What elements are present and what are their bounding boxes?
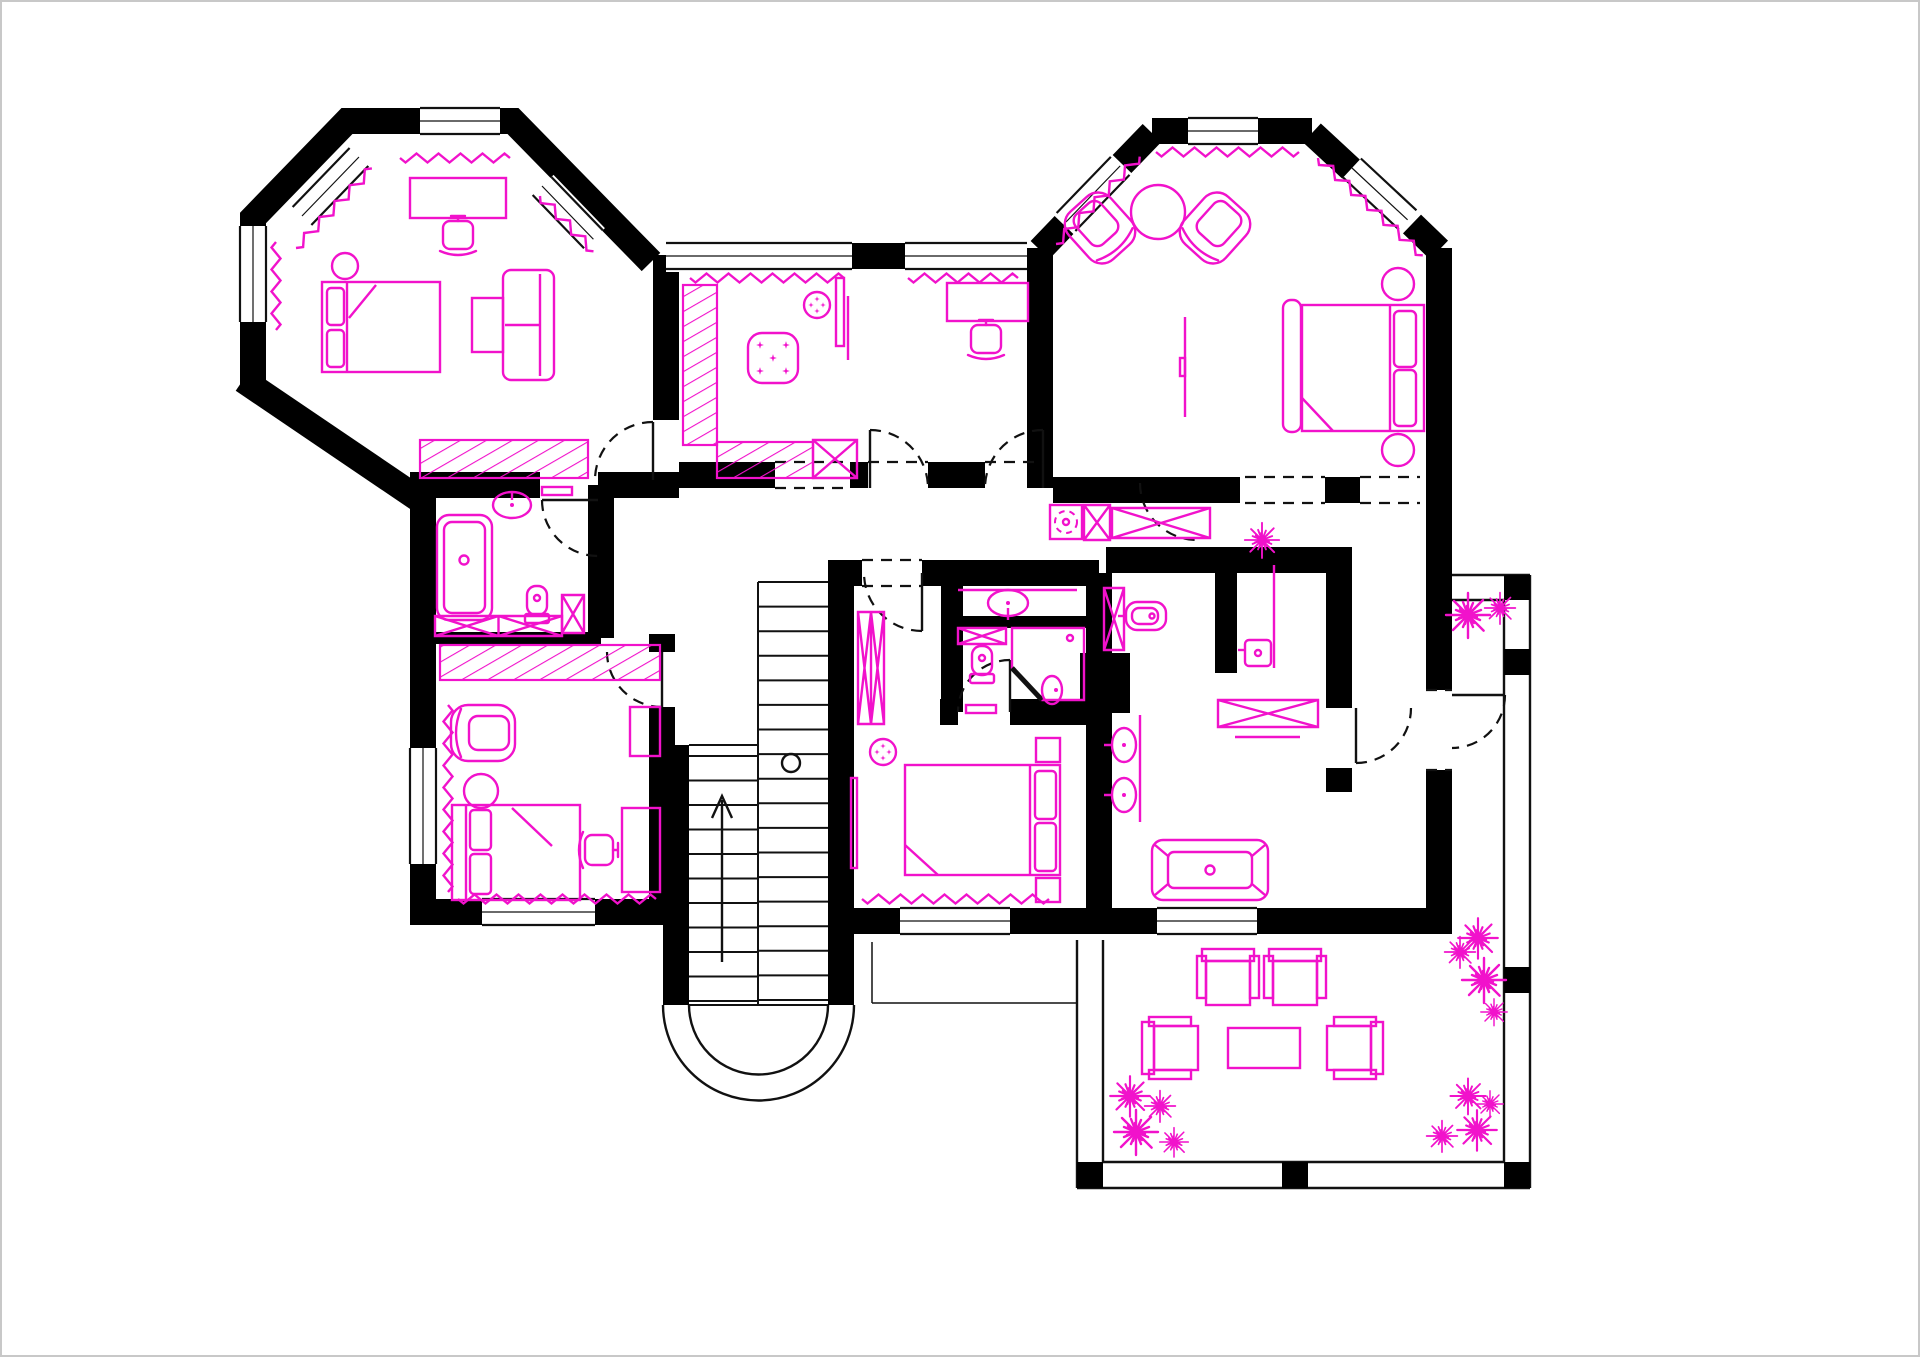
round-side-table	[464, 774, 498, 808]
stair-newel-circle	[782, 754, 800, 772]
desk-chair	[440, 216, 476, 255]
bench-cabinet	[1218, 700, 1318, 727]
wide-low-cabinet	[1112, 508, 1210, 538]
shower-stall	[1238, 565, 1274, 668]
toilet	[525, 586, 549, 623]
outdoor-armchair	[1197, 949, 1259, 1005]
floor-plan-drawing: architectural floor plan	[0, 0, 1920, 1357]
shelf	[542, 487, 572, 495]
ottoman	[748, 333, 798, 383]
vanity-washbasin	[988, 590, 1028, 620]
staircase: U-shaped staircase	[663, 582, 854, 1101]
desk	[410, 178, 506, 218]
wardrobe-left	[683, 285, 717, 445]
stair-treads-left	[689, 756, 758, 1001]
wardrobe-hatched	[420, 440, 588, 478]
terrace-plants	[1110, 593, 1515, 1157]
room-bathroom-1: Bathroom	[435, 487, 584, 636]
room-bedroom-2: Bedroom (lower left)	[440, 645, 660, 900]
stair-curved-wall-outer	[663, 1005, 854, 1101]
tufted-foot-bench	[1283, 300, 1301, 432]
room-master-bathroom: Master bathroom	[1104, 565, 1318, 900]
room-study: Study	[947, 283, 1028, 359]
cross-cabinet	[813, 440, 857, 478]
round-bedside-table	[332, 253, 358, 279]
pouf	[870, 739, 896, 765]
nightstand-top	[1382, 268, 1414, 300]
bed	[1302, 305, 1424, 431]
bed	[452, 805, 580, 900]
side-table	[472, 298, 503, 352]
sofa	[503, 270, 554, 380]
room-walk-in-closet: Walk-in closet	[683, 278, 857, 478]
outdoor-armchair	[1327, 1017, 1383, 1079]
pouf	[804, 292, 830, 318]
tv-stand	[1180, 358, 1185, 376]
outdoor-table	[1228, 1028, 1300, 1068]
outdoor-furniture	[1142, 949, 1383, 1079]
washing-machine	[1050, 505, 1082, 539]
washbasin	[493, 492, 531, 518]
tall-cabinet	[562, 595, 584, 633]
stair-curved-wall-inner	[689, 1005, 828, 1075]
corner-shower	[1012, 628, 1084, 700]
nightstand-top	[1036, 738, 1060, 762]
room-master-bedroom: Master bedroom (octagonal bay)	[1058, 185, 1424, 466]
room-ensuite-bathroom: En-suite bathroom	[958, 590, 1084, 713]
desk-chair	[579, 832, 618, 868]
rug	[966, 705, 996, 713]
armchair	[451, 705, 515, 761]
wardrobe-hatched	[440, 645, 660, 680]
stair-treads-right	[758, 582, 828, 1000]
desk-chair	[968, 320, 1004, 359]
mirror	[836, 278, 848, 360]
bed	[905, 765, 1060, 875]
wardrobe-bottom	[717, 442, 813, 478]
outdoor-armchair	[1264, 949, 1326, 1005]
nightstand-bottom	[1382, 434, 1414, 466]
stair-stringer	[689, 582, 828, 1005]
bathtub	[1152, 840, 1268, 900]
room-bedroom-1: Bedroom (octagonal bay)	[322, 178, 588, 478]
cross-cabinet	[1084, 505, 1110, 540]
bed	[322, 282, 440, 372]
round-table	[1131, 185, 1185, 239]
tall-wardrobe	[858, 612, 884, 724]
desk	[947, 283, 1028, 321]
floor-plan-canvas: architectural floor plan	[0, 0, 1920, 1357]
bathtub	[437, 515, 492, 620]
armchair-right	[1173, 185, 1257, 270]
cross-cabinet	[958, 628, 1006, 644]
outdoor-armchair	[1142, 1017, 1198, 1079]
